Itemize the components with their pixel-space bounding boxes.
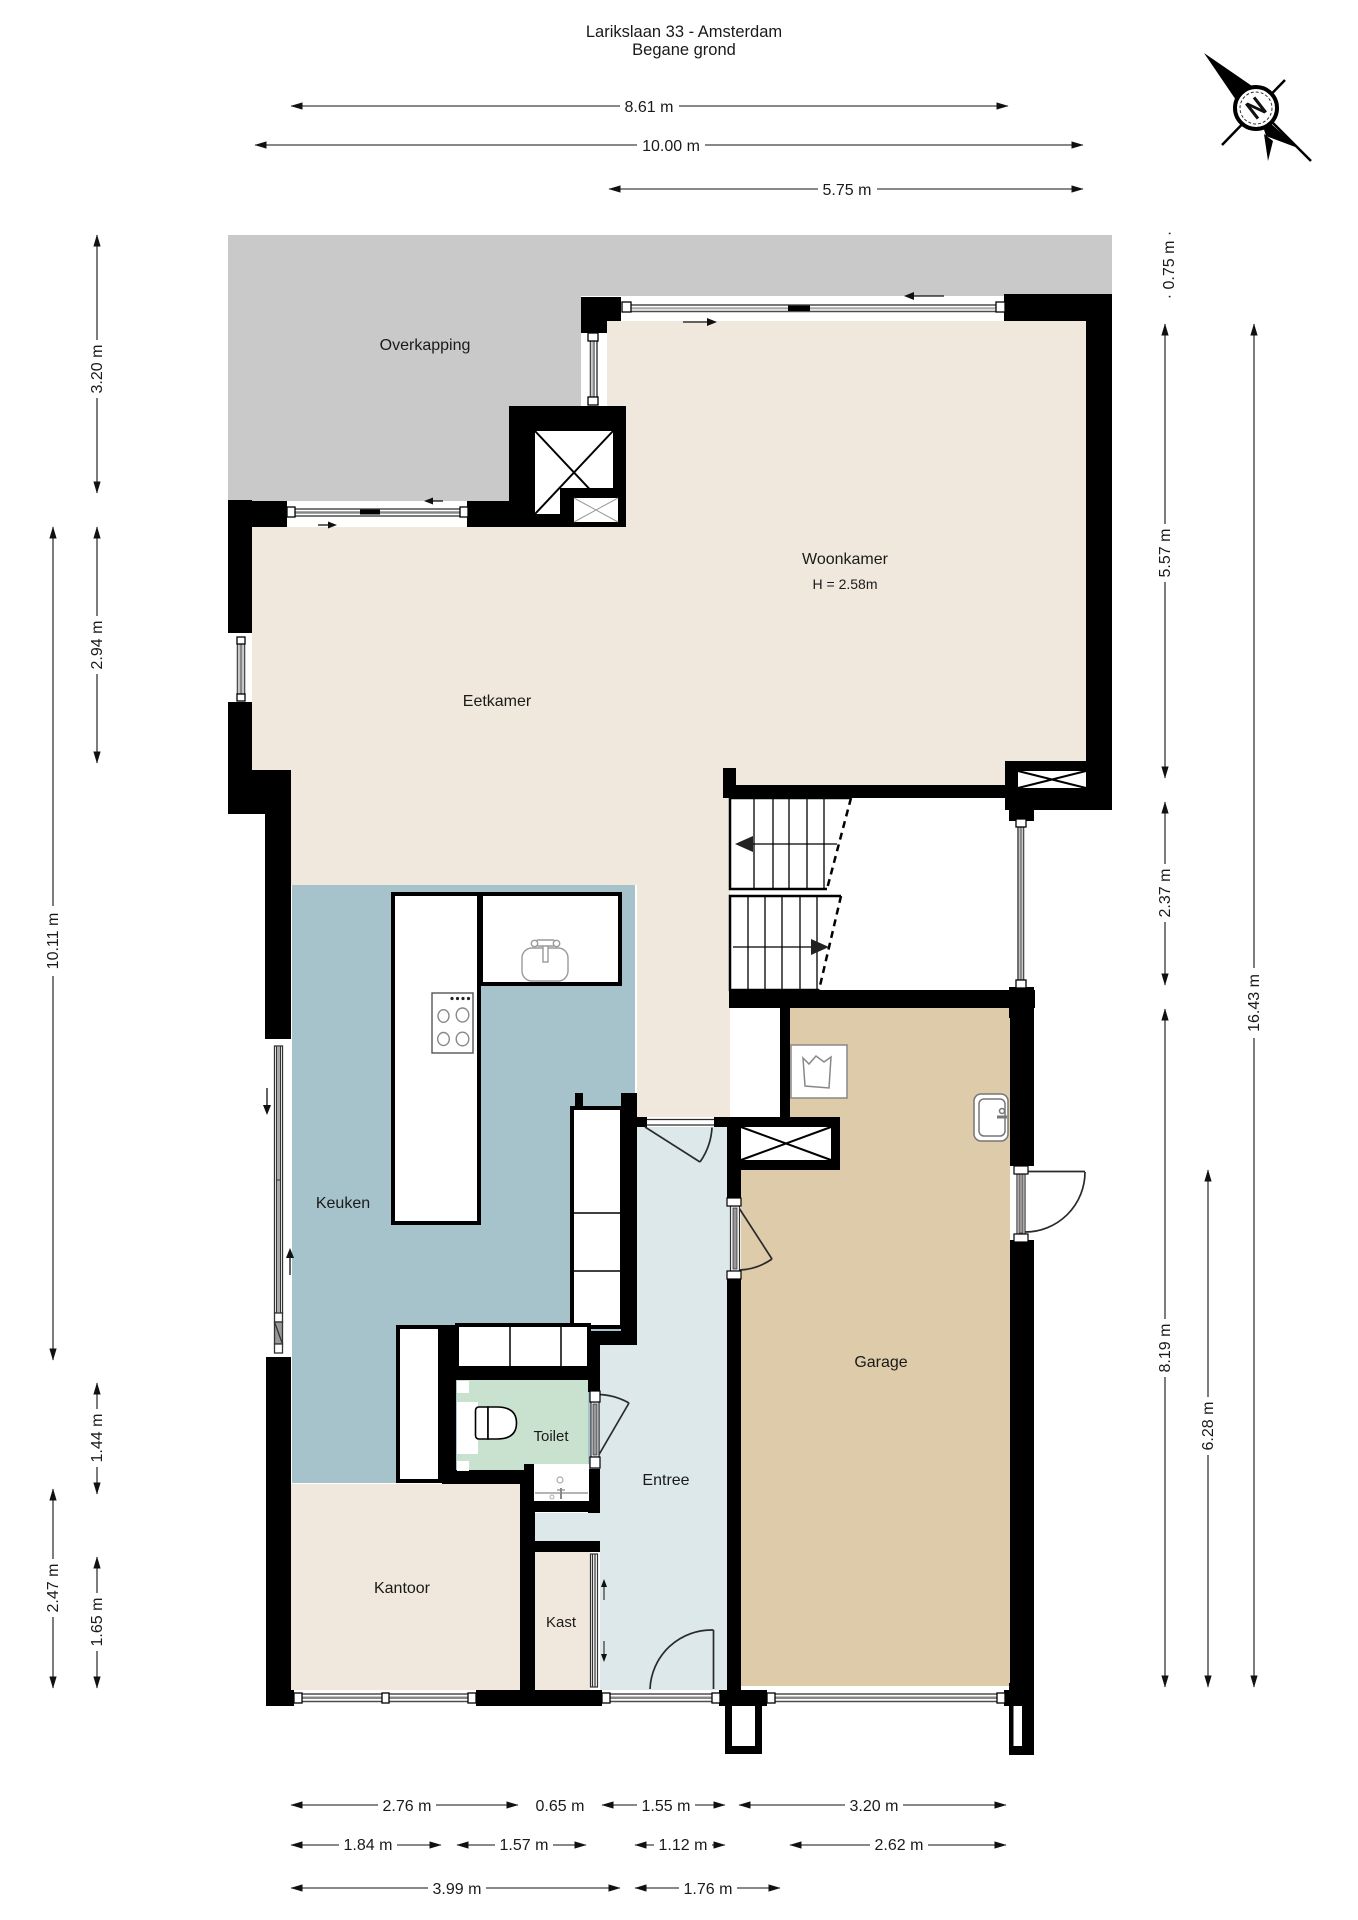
svg-text:· 0.75 m ·: · 0.75 m · (1161, 231, 1178, 299)
svg-text:1.57 m: 1.57 m (500, 1837, 549, 1854)
svg-text:Kantoor: Kantoor (374, 1580, 431, 1597)
svg-text:Garage: Garage (854, 1354, 907, 1371)
svg-text:10.00 m: 10.00 m (642, 138, 700, 155)
svg-text:3.20 m: 3.20 m (850, 1798, 899, 1815)
svg-text:2.94 m: 2.94 m (89, 621, 106, 670)
svg-text:Overkapping: Overkapping (380, 337, 471, 354)
svg-text:1.84 m: 1.84 m (344, 1837, 393, 1854)
svg-text:1.12 m: 1.12 m (659, 1837, 708, 1854)
svg-text:1.44 m: 1.44 m (89, 1414, 106, 1463)
svg-text:Woonkamer: Woonkamer (802, 551, 889, 568)
svg-text:0.65 m: 0.65 m (536, 1798, 585, 1815)
svg-text:5.75 m: 5.75 m (823, 182, 872, 199)
svg-text:8.61 m: 8.61 m (625, 99, 674, 116)
svg-text:6.28 m: 6.28 m (1200, 1402, 1217, 1451)
svg-text:Eetkamer: Eetkamer (463, 693, 532, 710)
svg-text:1.65 m: 1.65 m (89, 1598, 106, 1647)
svg-text:Entree: Entree (642, 1472, 689, 1489)
svg-text:H = 2.58m: H = 2.58m (813, 576, 878, 592)
svg-text:Toilet: Toilet (533, 1428, 569, 1445)
svg-text:2.37 m: 2.37 m (1157, 869, 1174, 918)
svg-text:8.19 m: 8.19 m (1157, 1324, 1174, 1373)
svg-text:Keuken: Keuken (316, 1195, 370, 1212)
svg-text:Begane grond: Begane grond (632, 41, 736, 59)
svg-text:10.11 m: 10.11 m (45, 913, 62, 970)
svg-text:3.99 m: 3.99 m (433, 1881, 482, 1898)
svg-text:2.76 m: 2.76 m (383, 1798, 432, 1815)
svg-text:1.55 m: 1.55 m (642, 1798, 691, 1815)
svg-text:1.76 m: 1.76 m (684, 1881, 733, 1898)
svg-text:2.47 m: 2.47 m (45, 1564, 62, 1613)
svg-text:Kast: Kast (546, 1614, 577, 1631)
svg-text:2.62 m: 2.62 m (875, 1837, 924, 1854)
svg-text:16.43 m: 16.43 m (1246, 974, 1263, 1032)
svg-text:Larikslaan 33 - Amsterdam: Larikslaan 33 - Amsterdam (586, 23, 782, 41)
svg-text:3.20 m: 3.20 m (89, 345, 106, 394)
svg-text:5.57 m: 5.57 m (1157, 529, 1174, 578)
